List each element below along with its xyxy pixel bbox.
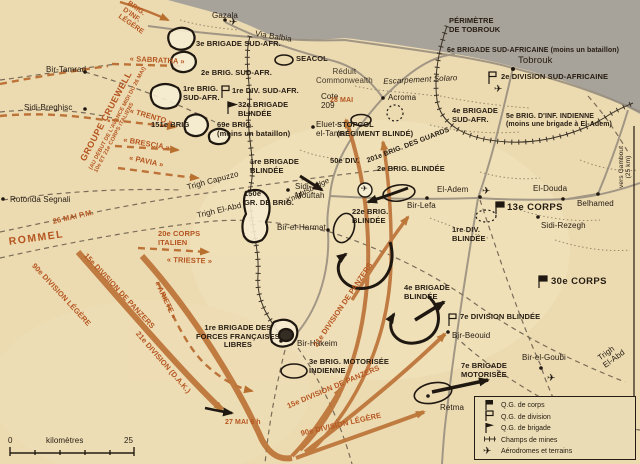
division-hq-flag-2sa bbox=[489, 72, 496, 84]
scale-max: 25 bbox=[124, 436, 133, 445]
legend-row-brigade: Q.G. de brigade bbox=[483, 423, 635, 435]
label-date-28-mai: 28 MAI bbox=[330, 97, 353, 105]
place-bir-el-harmat: Bir-el-Harmat bbox=[277, 223, 326, 232]
unit-1re-div-blindee: 1re DIV. BLINDÉE bbox=[452, 226, 486, 243]
place-reduit-commonwealth: Réduit Commonwealth bbox=[316, 67, 373, 85]
airfield-icon-knightsbridge: ✈ bbox=[361, 185, 368, 193]
legend-label-corps: Q.G. de corps bbox=[501, 402, 545, 409]
place-sidi-rezegh: Sidi-Rezegh bbox=[541, 221, 586, 230]
label-perimetre-tobrouk: PÉRIMÈTRE DE TOBROUK bbox=[449, 17, 500, 34]
airfield-icon-el-adem: ✈ bbox=[482, 187, 490, 197]
legend: Q.G. de corps Q.G. de division Q.G. de b… bbox=[474, 396, 636, 460]
place-bir-lefa: Bir-Lefa bbox=[407, 201, 436, 210]
place-rotonda-segnali: Rotonda Segnali bbox=[10, 195, 71, 204]
unit-2e-brig-blindee: 2e BRIG. BLINDÉE bbox=[377, 165, 445, 174]
legend-row-division: Q.G. de division bbox=[483, 412, 635, 424]
airfield-icon-tobrouk: ✈ bbox=[494, 85, 502, 95]
place-belhamed: Belhamed bbox=[577, 199, 614, 208]
unit-1re-brigade-ffl: 1re BRIGADE DES FORCES FRANÇAISES LIBRES bbox=[196, 324, 280, 350]
unit-7e-division-blindee: 7e DIVISION BLINDÉE bbox=[460, 313, 540, 322]
legend-label-aerodromes: Aérodromes et terrains bbox=[501, 448, 572, 455]
unit-6e-brigade-sud-africaine: 6e BRIGADE SUD-AFRICAINE (moins un batai… bbox=[447, 47, 619, 55]
division-hq-flag-1sa bbox=[222, 86, 229, 98]
place-retma: Retma bbox=[440, 403, 464, 412]
unit-22e-brig-blindee: 22e BRIG. BLINDÉE bbox=[352, 208, 388, 225]
place-sidi-breghisc: Sidi-Breghisc bbox=[24, 103, 72, 112]
unit-2e-division-sud-africaine: 2e DIVISION SUD-AFRICAINE bbox=[501, 73, 608, 82]
unit-2e-brig-sud-afr: 2e BRIG. SUD-AFR. bbox=[201, 69, 272, 78]
legend-label-brigade: Q.G. de brigade bbox=[501, 425, 551, 432]
airfield-icon-gazala: ✈ bbox=[229, 18, 237, 28]
airfield-legend-icon: ✈ bbox=[483, 446, 501, 457]
unit-trieste: « TRIESTE » bbox=[167, 256, 213, 266]
place-vers-gambout: vers Gambout (25 km) bbox=[618, 146, 633, 188]
unit-69e-brig: 69e BRIG. (moins un bataillon) bbox=[217, 121, 290, 138]
unit-1re-brig-sud-afr: 1re BRIG. SUD-AFR. bbox=[183, 85, 220, 102]
legend-row-aerodromes: ✈ Aérodromes et terrains bbox=[483, 446, 635, 458]
unit-20e-corps-italien: 20e CORPS ITALIEN bbox=[158, 230, 200, 247]
place-bir-el-goubi: Bir-el-Goubi bbox=[522, 353, 566, 362]
legend-label-division: Q.G. de division bbox=[501, 414, 551, 421]
unit-4e-brigade-sud-afr: 4e BRIGADE SUD-AFR. bbox=[452, 107, 498, 124]
unit-4e-brigade-blindee: 4e BRIGADE BLINDÉE bbox=[404, 284, 450, 301]
place-el-adem: El-Adem bbox=[437, 185, 468, 194]
unit-32e-brigade-blindee: 32e BRIGADE BLINDÉE bbox=[238, 101, 288, 118]
place-acroma: Acroma bbox=[388, 93, 416, 102]
brigade-hq-flag-32 bbox=[228, 102, 236, 114]
place-bir-beouid: Bir-Beouid bbox=[452, 331, 490, 340]
legend-row-mines: Champs de mines bbox=[483, 435, 635, 447]
unit-stopcol: STOPCOL (RÉGIMENT BLINDÉ) bbox=[337, 121, 413, 138]
unit-50e-div: 50e DIV. bbox=[330, 157, 359, 166]
unit-13e-corps: 13e CORPS bbox=[507, 203, 563, 214]
unit-5e-brig-inf-indienne: 5e BRIG. D'INF. INDIENNE (moins une brig… bbox=[506, 113, 612, 129]
place-bir-tamrad: Bir-Tamrad bbox=[46, 65, 86, 74]
unit-150e-gr-de-brig: 150e GR. DE BRIG. bbox=[244, 190, 294, 207]
unit-seacol: SEACOL bbox=[296, 55, 328, 64]
scale-zero: 0 bbox=[8, 436, 13, 445]
unit-1re-div-sud-afr: 1re DIV. SUD-AFR. bbox=[232, 87, 299, 96]
label-date-27-mai: 27 MAI 6 h bbox=[225, 419, 261, 427]
legend-label-mines: Champs de mines bbox=[501, 437, 557, 444]
airfield-icon-bir-el-goubi: ✈ bbox=[547, 374, 555, 384]
legend-row-corps: Q.G. de corps bbox=[483, 400, 635, 412]
place-tobrouk: Tobrouk bbox=[518, 56, 553, 67]
unit-3e-brigade-sud-afr: 3e BRIGADE SUD-AFR. bbox=[196, 40, 281, 49]
unit-30e-corps: 30e CORPS bbox=[551, 277, 607, 288]
unit-1re-brigade-blindee: 1re BRIGADE BLINDÉE bbox=[250, 158, 299, 175]
gazala-battle-map: Gazala Via Balbia Bir-Tamrad Sidi-Breghi… bbox=[0, 0, 640, 464]
place-el-douda: El-Douda bbox=[533, 184, 567, 193]
scale-unit: kilomètres bbox=[46, 436, 83, 445]
unit-7e-brigade-motorisee: 7e BRIGADE MOTORISÉE bbox=[461, 362, 507, 379]
